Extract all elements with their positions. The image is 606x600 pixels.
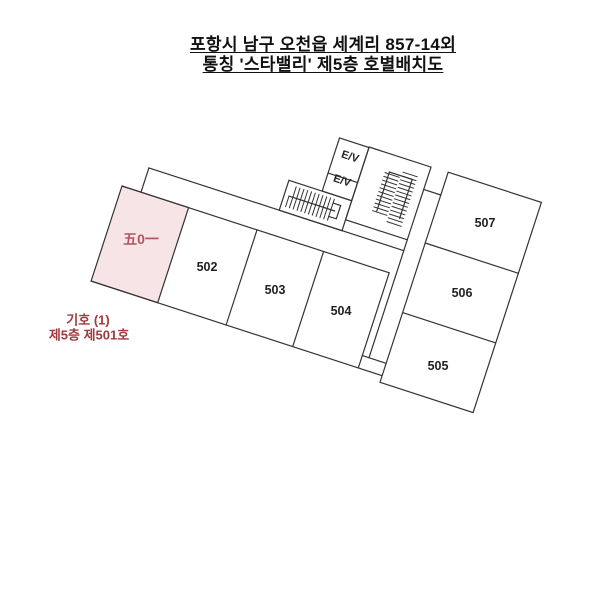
unit-506-label: 506 [452,286,473,300]
annotation-unit: 제5층 제501호 [49,325,129,344]
unit-505-label: 505 [428,359,449,373]
unit-502-label: 502 [197,260,218,274]
unit-507-label: 507 [475,216,496,230]
floor-plan-drawing [0,0,606,600]
unit-501-label: 五0一 [123,229,159,249]
drawing-title: 포항시 남구 오천읍 세계리 857-14외 통칭 '스타밸리' 제5층 호별배… [40,35,606,75]
floor-plan-page: 포항시 남구 오천읍 세계리 857-14외 통칭 '스타밸리' 제5층 호별배… [0,0,606,600]
unit-503-label: 503 [265,283,286,297]
title-line-1: 포항시 남구 오천읍 세계리 857-14외 [190,35,456,54]
unit-504-label: 504 [331,304,352,318]
title-line-2: 통칭 '스타밸리' 제5층 호별배치도 [203,55,444,74]
